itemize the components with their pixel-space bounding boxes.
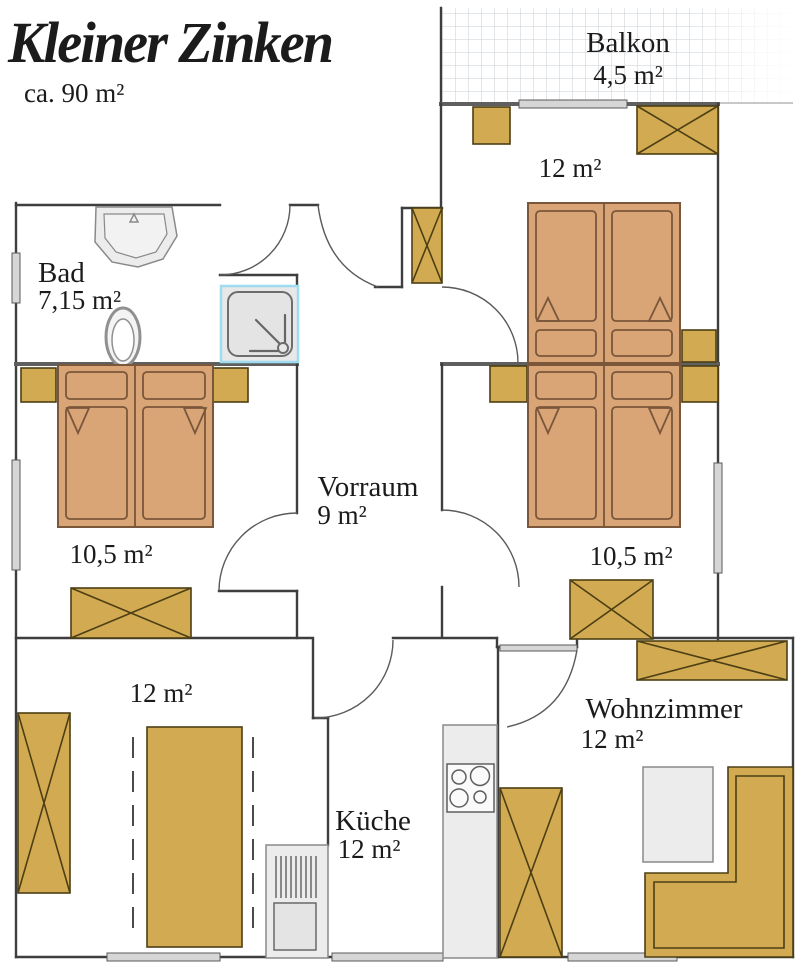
cooktop [447, 764, 494, 812]
double-bed [58, 365, 213, 527]
wohnzimmer-door-arc [507, 650, 577, 727]
wardrobe [71, 588, 191, 638]
pillow [66, 372, 127, 399]
schlafzimmer-rechts-area: 10,5 m² [589, 541, 672, 571]
bad-window [12, 253, 20, 303]
nightstand [212, 368, 248, 402]
wardrobe [637, 106, 718, 154]
zimmer-unten-window [107, 953, 220, 961]
kueche-window [332, 953, 443, 961]
floorplan-svg: Kleiner Zinken ca. 90 m² Balkon 4,5 m² [0, 0, 800, 968]
table [643, 767, 713, 862]
pillow [536, 372, 596, 399]
kueche-area: 12 m² [338, 834, 401, 864]
table [147, 727, 242, 947]
balkon-area: 4,5 m² [593, 60, 663, 90]
room-balkon: Balkon 4,5 m² [441, 8, 795, 104]
toilet [106, 308, 140, 366]
bedroom-left-window [12, 460, 20, 570]
pillow [536, 330, 596, 356]
balkon-label: Balkon [586, 27, 670, 59]
pillow [612, 330, 672, 356]
pillow [143, 372, 205, 399]
tiled-stove [266, 845, 328, 958]
bedroom-right-window [714, 463, 722, 573]
room-zimmer-unten: 12 m² [18, 678, 253, 947]
bedroom-right-door-arc [442, 510, 519, 587]
double-bed [528, 365, 680, 527]
nightstand [21, 368, 56, 402]
floorplan-page: Kleiner Zinken ca. 90 m² Balkon 4,5 m² [0, 0, 800, 968]
page-subtitle: ca. 90 m² [24, 78, 124, 108]
vorraum-area: 9 m² [317, 500, 366, 530]
wohnzimmer-door-leaf [500, 645, 577, 651]
entry-door-arc [318, 205, 378, 287]
room-bad: Bad 7,15 m² [38, 207, 298, 366]
nightstand [682, 330, 716, 362]
bedroom-top-door-arc [442, 287, 518, 363]
nightstand [682, 366, 718, 402]
page-title: Kleiner Zinken [7, 10, 332, 75]
kueche-label: Küche [335, 805, 411, 837]
wardrobe [412, 208, 442, 283]
schlafzimmer-links-area: 10,5 m² [69, 539, 152, 569]
wohnzimmer-area: 12 m² [581, 724, 644, 754]
room-schlafzimmer-oben: 12 m² [473, 106, 718, 363]
nightstand [473, 107, 510, 144]
bad-door-arc [220, 205, 290, 275]
kueche-door-arc [315, 640, 393, 718]
wardrobe-tall [500, 788, 562, 957]
room-kueche: Küche 12 m² [266, 725, 497, 958]
schlafzimmer-oben-area: 12 m² [539, 153, 602, 183]
kitchen-counter [443, 725, 497, 958]
balcony-door-window [519, 100, 627, 108]
wardrobe [570, 580, 653, 639]
double-bed [528, 203, 680, 363]
wardrobe [18, 713, 70, 893]
bedroom-left-door-arc [219, 513, 297, 591]
bad-area: 7,15 m² [38, 285, 121, 315]
room-schlafzimmer-rechts: 10,5 m² [490, 365, 718, 639]
room-schlafzimmer-links: 10,5 m² [21, 365, 248, 638]
zimmer-unten-area: 12 m² [130, 678, 193, 708]
vorraum-label: Vorraum [318, 471, 419, 503]
pillow [612, 372, 672, 399]
room-wohnzimmer: Wohnzimmer 12 m² [500, 641, 793, 957]
nightstand [490, 366, 527, 402]
shower [221, 286, 298, 362]
wohnzimmer-label: Wohnzimmer [585, 693, 742, 725]
shower-drain [278, 343, 288, 353]
sink [95, 207, 177, 267]
wardrobe [637, 641, 787, 680]
